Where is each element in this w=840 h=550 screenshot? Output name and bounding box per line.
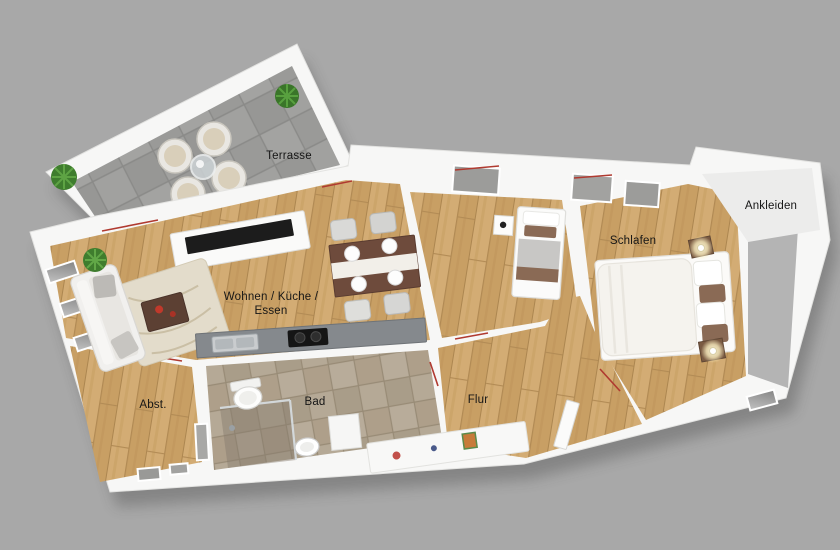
label-wohnen-line2: Essen (224, 304, 318, 318)
dining-chair (383, 292, 410, 315)
plant-terrace-left-icon (51, 164, 77, 190)
lamp-icon (698, 245, 705, 252)
dining-chair (369, 211, 396, 234)
dining-chair (330, 218, 357, 241)
window-icon (195, 424, 209, 461)
shower (220, 400, 296, 468)
lounge-chair (158, 139, 192, 173)
window-icon (170, 463, 189, 475)
label-wohnen-kueche-essen: Wohnen / Küche / Essen (224, 290, 318, 318)
bed-pillow-white (693, 260, 723, 286)
deco-picture (462, 432, 477, 449)
terrace-table (191, 155, 215, 179)
label-abstellraum: Abst. (139, 398, 166, 412)
lamp-icon (710, 348, 717, 355)
label-bad: Bad (304, 395, 325, 409)
plant-terrace-top-icon (275, 84, 299, 108)
cooktop (287, 328, 328, 348)
bed-pillow-brown (699, 284, 726, 304)
label-terrasse: Terrasse (266, 149, 312, 163)
label-wohnen-line1: Wohnen / Küche / (224, 290, 318, 304)
kitchen-sink (212, 334, 259, 353)
floorplan-render: Terrasse Wohnen / Küche / Essen Schlafen… (0, 0, 840, 550)
floorplan-graphic (0, 0, 840, 550)
bath-cabinet (328, 414, 361, 451)
window-icon (624, 181, 660, 207)
label-schlafen: Schlafen (610, 234, 656, 248)
plant-living-icon (83, 248, 107, 272)
label-flur: Flur (468, 393, 489, 407)
sofa-pillow (92, 274, 117, 299)
lounge-chair (197, 122, 231, 156)
dining-chair (344, 299, 371, 322)
bed-pillow-white (696, 302, 726, 328)
window-icon (138, 467, 161, 481)
nightstand (493, 215, 513, 235)
label-ankleiden: Ankleiden (745, 199, 797, 213)
bed-pillow-brown (524, 225, 557, 238)
single-bed (512, 206, 566, 299)
